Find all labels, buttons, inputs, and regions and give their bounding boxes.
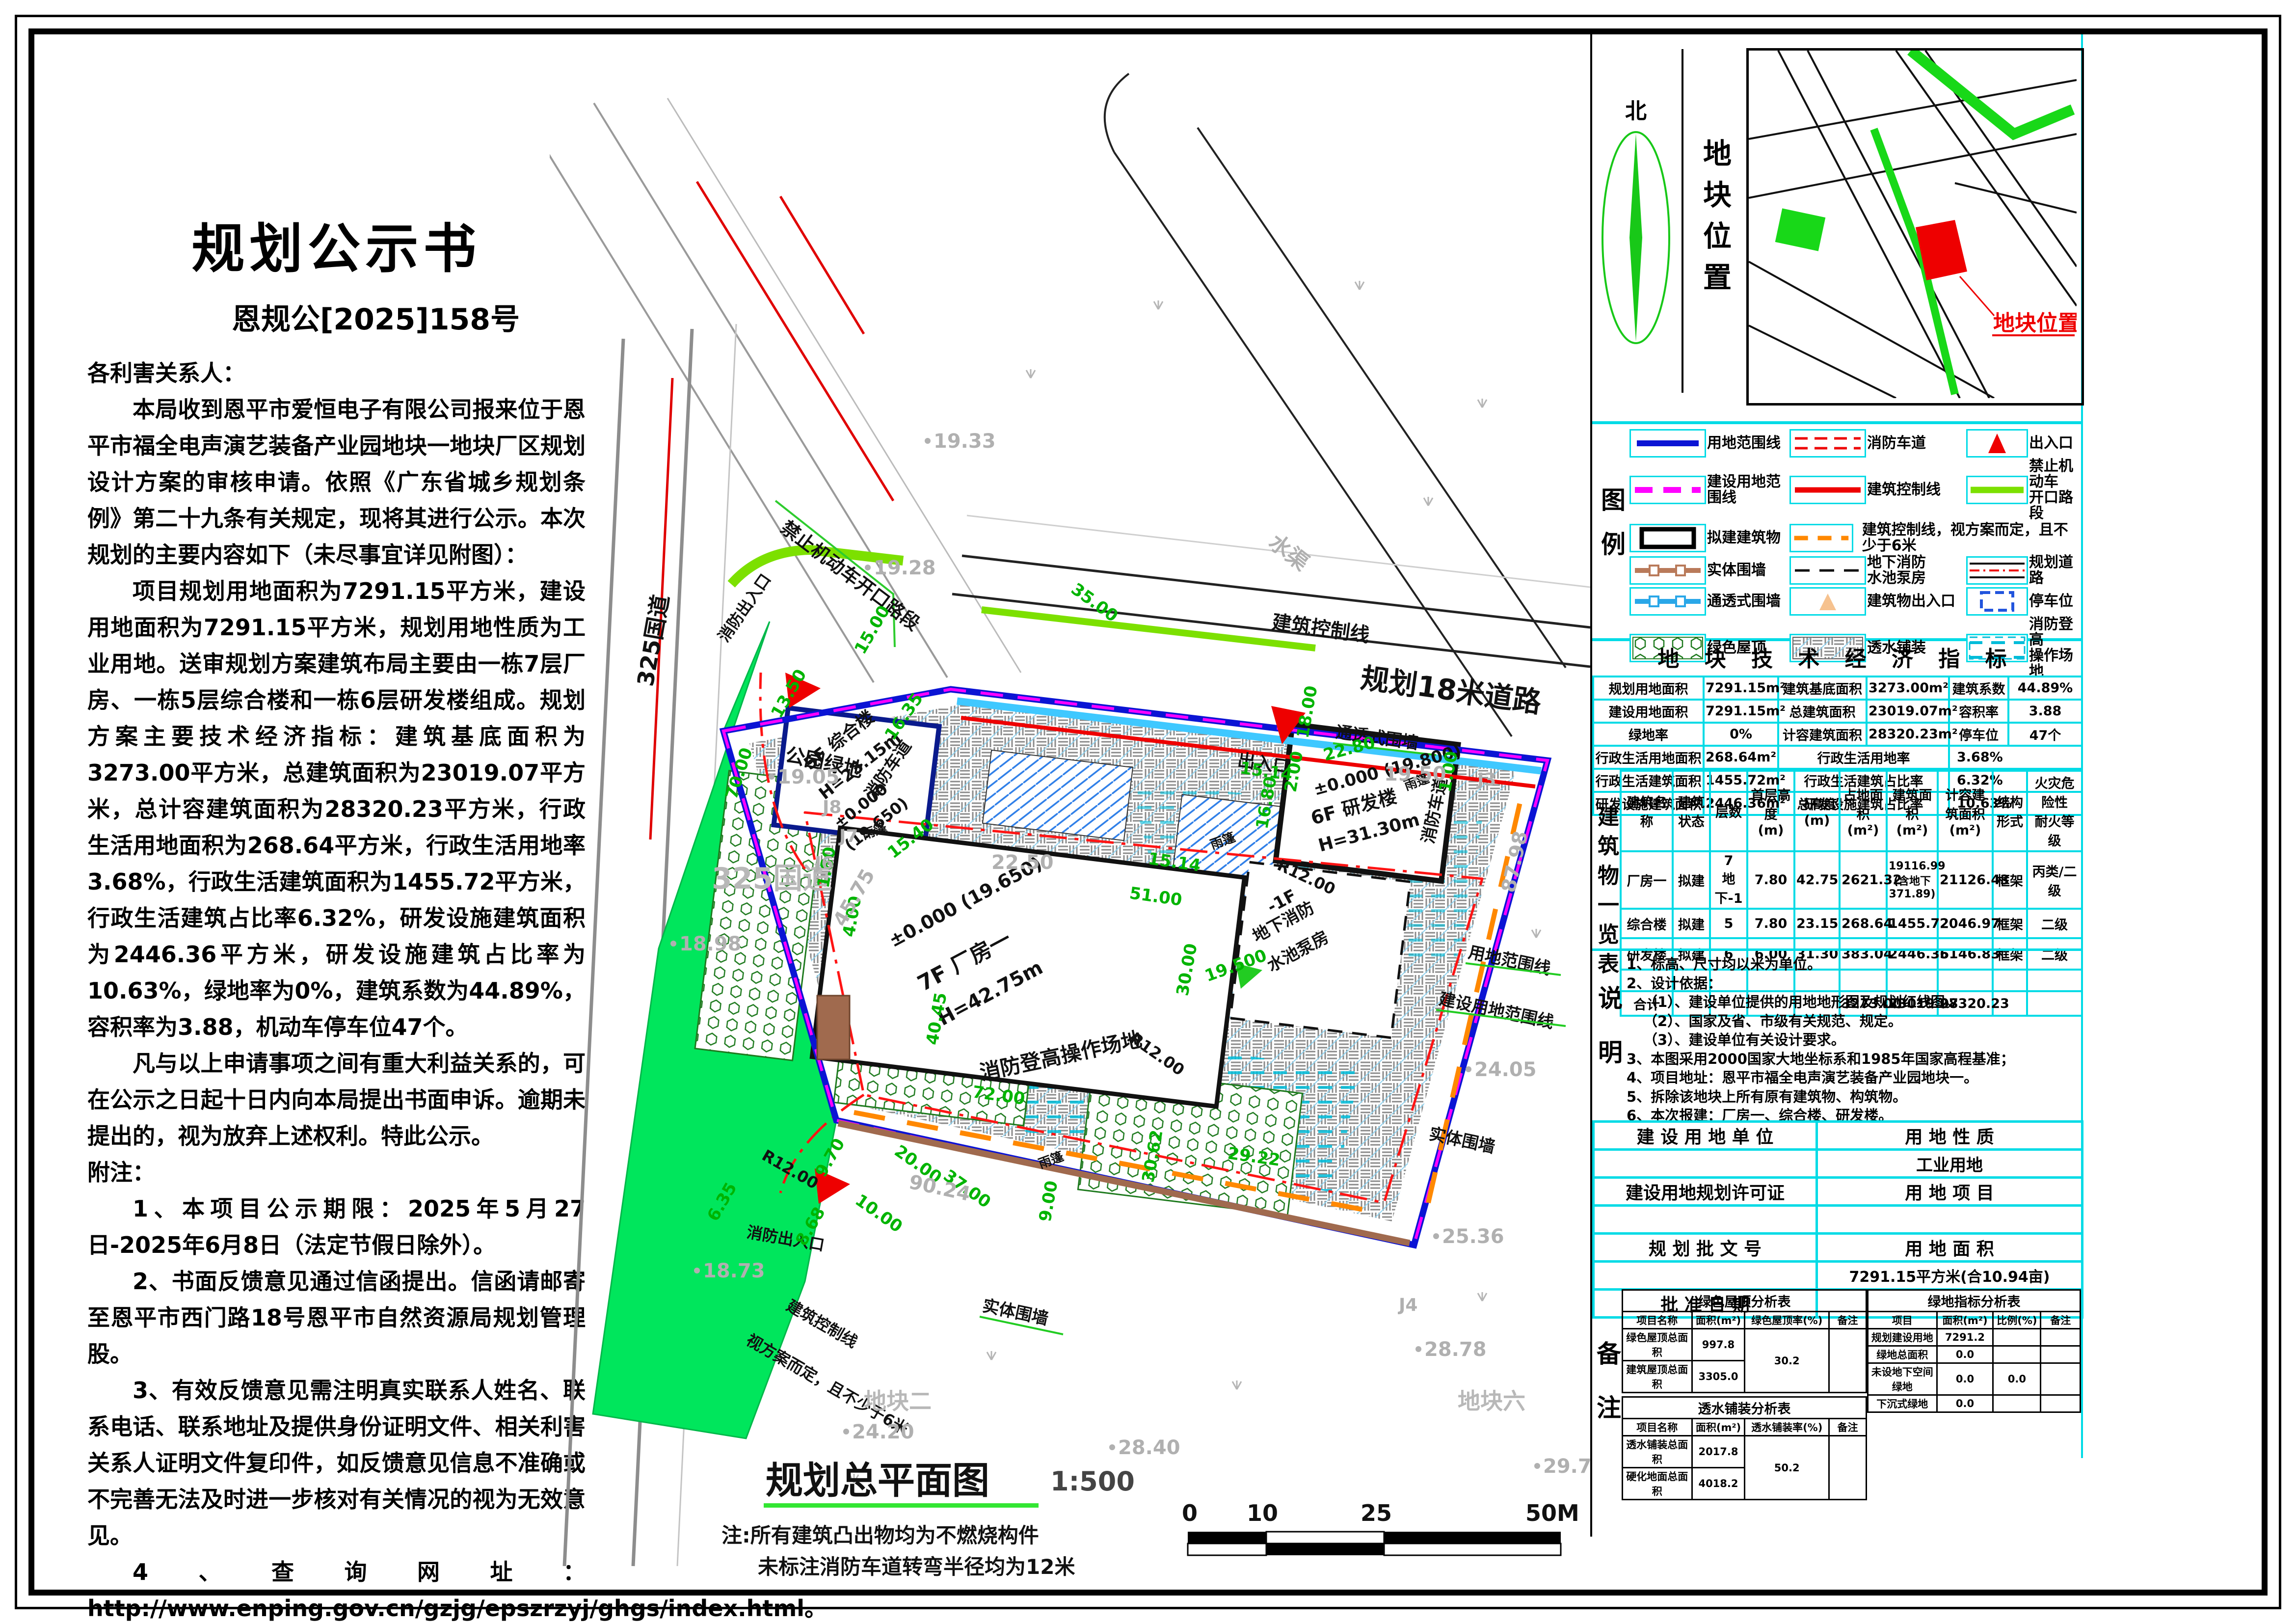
- legend-label2: 水池泵房: [1867, 569, 1926, 587]
- notice-panel: 规划公示书 恩规公[2025]158号 各利害关系人： 本局收到恩平市爱恒电子有…: [87, 206, 586, 1624]
- cell: 3.88: [2008, 700, 2082, 723]
- dim-15: 15.00: [851, 602, 894, 657]
- elev-18-98: 18.98: [679, 933, 742, 955]
- cell: [2041, 1363, 2081, 1395]
- cell: 建筑系数: [1949, 677, 2008, 700]
- cell: 总建筑面积: [1778, 700, 1867, 723]
- cell: 3305.0: [1692, 1361, 1745, 1393]
- notice-paragraph-2: 项目规划用地面积为7291.15平方米，建设用地面积为7291.15平方米，规划…: [87, 573, 586, 1045]
- green-roof-table: 绿色屋顶分析表 项目名称面积(m²)绿色屋顶率(%)备注 绿色屋顶总面积997.…: [1622, 1289, 1867, 1393]
- legend-label: 规划道路: [2025, 555, 2077, 586]
- notice-title: 规划公示书: [87, 206, 586, 283]
- legend-label: 建筑控制线，视方案而定，且不少于6米: [1858, 522, 2077, 554]
- cell: 行政生活用地面积: [1593, 746, 1704, 769]
- cell: 绿地率: [1593, 723, 1704, 746]
- cell: 1455.72: [1887, 909, 1938, 938]
- scalebar-10: 10: [1247, 1500, 1278, 1526]
- elev-29-70: 29.70: [1543, 1455, 1590, 1478]
- info-label: 建 设 用 地 单 位: [1594, 1122, 1817, 1150]
- legend-title: 图例: [1595, 424, 1628, 638]
- legend-label: 消防车道: [1863, 435, 1966, 451]
- legend-building-entrance-icon: [1789, 587, 1866, 616]
- legend-constr-boundary-icon: [1629, 476, 1706, 504]
- info-label: 用 地 面 积: [1817, 1234, 2082, 1262]
- cell: 硬化地面总面积: [1623, 1468, 1692, 1500]
- scalebar-25: 25: [1361, 1500, 1392, 1526]
- cell: [1993, 1329, 2041, 1346]
- cell: 综合楼: [1621, 909, 1673, 938]
- notes-title: 说明: [1592, 951, 1625, 1128]
- elev-22-50: 22.50: [991, 851, 1054, 874]
- cell: 二级: [2027, 909, 2082, 938]
- elev-28-78: 28.78: [1424, 1338, 1487, 1361]
- legend-control-line-icon: [1789, 476, 1866, 504]
- site-plan-drawing: 325国道 325国道 公园绿地 水渠 禁止机动车开口路段 建筑控制线 规划18…: [550, 34, 1590, 1590]
- road-325-label-gray: 325国道: [712, 862, 832, 896]
- right-panel: 北 地块位置 地块位置: [1590, 34, 2083, 1590]
- table-title: 绿地指标分析表: [1868, 1290, 2081, 1312]
- cell: 7.80: [1747, 909, 1794, 938]
- info-label: 用 地 性 质: [1817, 1122, 2082, 1150]
- header: 火灾危险性: [2035, 776, 2075, 811]
- parcel-location-label: 地块位置: [1993, 311, 2077, 336]
- cell: 3.68%: [1949, 746, 2082, 769]
- notice-paragraph-1: 本局收到恩平市爱恒电子有限公司报来位于恩平市福全电声演艺装备产业园地块一地块厂区…: [87, 391, 586, 573]
- elev-24-20: 24.20: [852, 1421, 914, 1443]
- notice-notes-heading: 附注：: [87, 1154, 586, 1191]
- cell: 规划建设用地: [1868, 1329, 1937, 1346]
- green-index-table: 绿地指标分析表 项目面积(m²)比例(%)备注 规划建设用地7291.2 绿地总…: [1867, 1289, 2081, 1413]
- legend-label: 禁止机动车: [2029, 458, 2073, 490]
- cell: 23.15: [1794, 909, 1840, 938]
- cell: 47个: [2008, 723, 2082, 746]
- info-value: 7291.15平方米(合10.94亩): [1817, 1262, 2082, 1290]
- header-unit: 形式: [1997, 814, 2023, 830]
- cell: 268.64: [1840, 909, 1887, 938]
- cell: 容积率: [1949, 700, 2008, 723]
- plan-announcement-sheet: 规划公示书 恩规公[2025]158号 各利害关系人： 本局收到恩平市爱恒电子有…: [0, 0, 2296, 1624]
- notice-doc-number: 恩规公[2025]158号: [166, 296, 586, 338]
- cell: 30.2: [1745, 1329, 1829, 1393]
- plan-note-1: 注:所有建筑凸出物均为不燃烧构件: [721, 1523, 1039, 1547]
- cell: 丙类/二级: [2027, 851, 2082, 909]
- cell: 0.0: [1993, 1363, 2041, 1395]
- road-325-label: 325国道: [632, 593, 674, 688]
- cell: [2041, 1395, 2081, 1412]
- cell: 4018.2: [1692, 1468, 1745, 1500]
- legend-label: 用地范围线: [1703, 435, 1789, 451]
- note-line: 1、标高、尺寸均以米为单位。: [1627, 955, 2015, 974]
- legend-no-opening-icon: [1966, 476, 2028, 504]
- cell: 42.75: [1794, 851, 1840, 909]
- elev-25-36: 25.36: [1442, 1225, 1504, 1248]
- point-j4: J4: [1397, 1295, 1417, 1315]
- location-inset-map: 地块位置: [1746, 48, 2084, 406]
- legend-land-boundary-icon: [1629, 429, 1706, 458]
- cell: [2041, 1329, 2081, 1346]
- legend-entrance-icon: [1966, 429, 2028, 458]
- scalebar-50m: 50M: [1525, 1500, 1579, 1526]
- header: 透水铺装率(%): [1745, 1419, 1829, 1436]
- note-line: 4、项目地址：恩平市福全电声演艺装备产业园地块一。: [1627, 1068, 2015, 1087]
- legend-underground-pump-icon: [1789, 556, 1866, 585]
- cell: 未设地下空间绿地: [1868, 1363, 1937, 1395]
- cell: 7291.2: [1937, 1329, 1993, 1346]
- cell: 绿地总面积: [1868, 1346, 1937, 1363]
- note-line: 2、设计依据：: [1627, 974, 2015, 993]
- cell: 0.0: [1937, 1395, 1993, 1412]
- cell: 拟建: [1673, 909, 1710, 938]
- legend-fire-lane-icon: [1789, 429, 1866, 458]
- header: 面积(m²): [1937, 1312, 1993, 1329]
- cell: 框架: [1993, 909, 2027, 938]
- cell: 框架: [1993, 851, 2027, 909]
- cell: 0%: [1704, 723, 1778, 746]
- cell: (含地下371.89): [1889, 875, 1936, 900]
- cell: 50.2: [1745, 1436, 1829, 1500]
- cell: 3273.00m²: [1867, 677, 1949, 700]
- scale-bar: 0 10 25 50M: [1182, 1500, 1579, 1555]
- cell: 建设用地面积: [1593, 700, 1704, 723]
- legend-label2: 开口路段: [2029, 489, 2073, 522]
- note-line: （2）、国家及省、市级有关规范、规定。: [1627, 1012, 2015, 1031]
- info-label: 建设用地规划许可证: [1594, 1178, 1817, 1206]
- note-line: 3、本图采用2000国家大地坐标系和1985年国家高程基准；: [1627, 1050, 2015, 1069]
- cell: 2046.97: [1938, 909, 1993, 938]
- legend-parking-icon: [1966, 587, 2028, 616]
- legend-label: 实体围墙: [1703, 563, 1789, 578]
- cell: 拟建: [1673, 851, 1710, 909]
- legend-proposed-building-icon: [1629, 524, 1706, 552]
- legend-label: 拟建建筑物: [1703, 530, 1789, 546]
- cell: 规划用地面积: [1593, 677, 1704, 700]
- legend-transparent-fence-icon: [1629, 587, 1706, 616]
- header: 层数: [1715, 805, 1742, 820]
- planned-18m-road-label: 规划18米道路: [1359, 661, 1544, 720]
- cell: 计容建筑面积: [1778, 723, 1867, 746]
- cell: 建筑基底面积: [1778, 677, 1867, 700]
- legend-label: 停车位: [2025, 594, 2077, 609]
- elev-28-40: 28.40: [1118, 1436, 1180, 1459]
- cell: 厂房一: [1621, 851, 1673, 909]
- notice-salutation: 各利害关系人：: [87, 355, 586, 391]
- cell: 5: [1710, 909, 1747, 938]
- elev-19-33: 19.33: [934, 430, 996, 453]
- header: 建筑面积: [1893, 788, 1932, 822]
- cell: 行政生活用地率: [1778, 746, 1949, 769]
- notice-paragraph-3: 凡与以上申请事项之间有重大利益关系的，可在公示之日起十日内向本局提出书面申诉。逾…: [87, 1045, 586, 1154]
- header: 备注: [1829, 1419, 1867, 1436]
- header: 面积(m²): [1692, 1312, 1745, 1329]
- header: 建筑: [1678, 795, 1705, 811]
- note-line: （1）、建设单位提供的用地地形图及规划红线图。: [1627, 993, 2015, 1012]
- plan-note-2: 未标注消防车道转弯半径均为12米: [758, 1555, 1075, 1579]
- legend-section: 图例 用地范围线 消防车道 出入口 建设用地范围线 建筑控制线 禁止机动车开口路: [1592, 421, 2081, 641]
- header: 备注: [1829, 1312, 1867, 1329]
- point-j3: J3: [1476, 770, 1496, 790]
- header: 项目: [1868, 1312, 1937, 1329]
- legend-control-line-dash-icon: [1789, 524, 1853, 552]
- header-unit: (m²): [1847, 823, 1879, 838]
- water-channel-label: 水渠: [1264, 529, 1313, 575]
- table-title: 透水铺装分析表: [1623, 1397, 1867, 1419]
- cell: 地下-1: [1715, 872, 1743, 906]
- header-unit: 状态: [1678, 814, 1705, 830]
- cell: 绿色屋顶总面积: [1623, 1329, 1692, 1361]
- cell: 28320.23m²: [1867, 723, 1949, 746]
- cell: 下沉式绿地: [1868, 1395, 1937, 1412]
- header-unit: (m): [1758, 823, 1784, 838]
- cell: 7291.15m²: [1704, 677, 1778, 700]
- legend-solid-wall-icon: [1629, 556, 1706, 585]
- table-title: 绿色屋顶分析表: [1623, 1290, 1867, 1312]
- cell: 997.8: [1692, 1329, 1745, 1361]
- point-j7: J7: [838, 826, 858, 846]
- cell: 2621.32: [1840, 851, 1887, 909]
- cell: 19116.99: [1889, 860, 1946, 872]
- header: 占地面积: [1843, 788, 1883, 822]
- notes-section: 说明 1、标高、尺寸均以米为单位。 2、设计依据： （1）、建设单位提供的用地地…: [1592, 948, 2081, 1128]
- cell: 7291.15m²: [1704, 700, 1778, 723]
- control-line-bottom-label: 建筑控制线: [783, 1296, 861, 1352]
- header: 绿色屋顶率(%): [1745, 1312, 1829, 1329]
- note-line: （3）、建设单位有关设计要求。: [1627, 1030, 2015, 1050]
- elev-19-50: 19.50: [1384, 763, 1446, 785]
- location-section-title: 地块位置: [1682, 49, 1748, 393]
- notice-note-2: 2、书面反馈意见通过信函提出。信函请邮寄至恩平市西门路18号恩平市自然资源局规划…: [87, 1263, 586, 1372]
- block2-label: 地块二: [864, 1388, 932, 1414]
- plan-scale: 1:500: [1050, 1466, 1135, 1497]
- cell: 建筑屋顶总面积: [1623, 1361, 1692, 1393]
- cell: 268.64m²: [1704, 746, 1778, 769]
- cell: [1993, 1346, 2041, 1363]
- cell: [2041, 1346, 2081, 1363]
- dim-10: 10.00: [852, 1191, 906, 1237]
- notice-note-4: 4、查询网址：http://www.enping.gov.cn/gzjg/eps…: [87, 1554, 586, 1624]
- plan-title: 规划总平面图: [766, 1459, 989, 1502]
- point-j6: J6: [813, 853, 833, 873]
- header: 比例(%): [1993, 1312, 2041, 1329]
- tech-indicator-title: 地 块 技 术 经 济 指 标: [1592, 637, 2081, 676]
- info-value: 工业用地: [1817, 1150, 2082, 1178]
- note-line: 5、拆除该地块上所有原有建筑物、构筑物。: [1627, 1087, 2015, 1107]
- legend-label: 建筑控制线: [1863, 482, 1966, 498]
- remark-section: 备注 绿色屋顶分析表 项目名称面积(m²)绿色屋顶率(%)备注 绿色屋顶总面积9…: [1592, 1289, 2081, 1500]
- header: 总高度: [1797, 797, 1837, 812]
- cell: 23019.07m²: [1867, 700, 1949, 723]
- legend-planned-road-icon: [1966, 556, 2028, 585]
- header: 项目名称: [1623, 1419, 1692, 1436]
- legend-label: 通透式围墙: [1703, 594, 1789, 609]
- header-unit: (m): [1804, 813, 1830, 828]
- header: 结构: [1997, 795, 2023, 811]
- notice-note-1: 1、本项目公示期限：2025年5月27日-2025年6月8日（法定节假日除外）。: [87, 1191, 586, 1263]
- cell: 0.0: [1937, 1363, 1993, 1395]
- cell: 透水铺装总面积: [1623, 1436, 1692, 1468]
- permeable-paving-table: 透水铺装分析表 项目名称面积(m²)透水铺装率(%)备注 透水铺装总面积2017…: [1622, 1396, 1867, 1500]
- header: 项目名称: [1623, 1312, 1692, 1329]
- legend-label: 出入口: [2025, 435, 2077, 451]
- cell: [1993, 1395, 2041, 1412]
- notice-note-3: 3、有效反馈意见需注明真实联系人姓名、联系电话、联系地址及提供身份证明文件、相关…: [87, 1372, 586, 1554]
- north-label: 北: [1599, 93, 1673, 125]
- header-unit: 耐火等级: [2035, 814, 2075, 849]
- header: 首层高度: [1751, 788, 1791, 822]
- cell: 停车位: [1949, 723, 2008, 746]
- legend-label: 地下消防: [1867, 554, 1926, 571]
- info-label: 用 地 项 目: [1817, 1178, 2082, 1206]
- north-arrow: 北: [1599, 93, 1673, 356]
- legend-label: 建设用地范围线: [1703, 474, 1789, 506]
- cell: 44.89%: [2008, 677, 2082, 700]
- plan-title-underline: [764, 1503, 1039, 1508]
- elev-19-05: 19.05: [777, 766, 840, 788]
- point-j8: J8: [821, 797, 841, 817]
- elev-24-05: 24.05: [1474, 1058, 1537, 1081]
- cell: 7.80: [1747, 851, 1794, 909]
- elev-19-28: 19.28: [874, 557, 936, 579]
- cell: 0.0: [1937, 1346, 1993, 1363]
- header: 备注: [2041, 1312, 2081, 1329]
- info-label: 规 划 批 文 号: [1594, 1234, 1817, 1262]
- cell: 21126.43: [1938, 851, 1993, 909]
- block6-label: 地块六: [1458, 1388, 1525, 1414]
- header-unit: (m²): [1896, 823, 1928, 838]
- remark-title: 备注: [1592, 1289, 1622, 1500]
- header: 建筑名称: [1627, 795, 1667, 830]
- header-unit: (m²): [1949, 823, 1981, 838]
- cell: 2017.8: [1692, 1436, 1745, 1468]
- scalebar-0: 0: [1182, 1500, 1198, 1526]
- legend-label: 建筑物出入口: [1863, 594, 1966, 609]
- header: 计容建筑面积: [1946, 788, 1985, 822]
- cell: 7: [1724, 853, 1734, 868]
- dim-9-00: 9.00: [1035, 1179, 1062, 1223]
- elev-18-73: 18.73: [703, 1260, 765, 1282]
- header: 面积(m²): [1692, 1419, 1745, 1436]
